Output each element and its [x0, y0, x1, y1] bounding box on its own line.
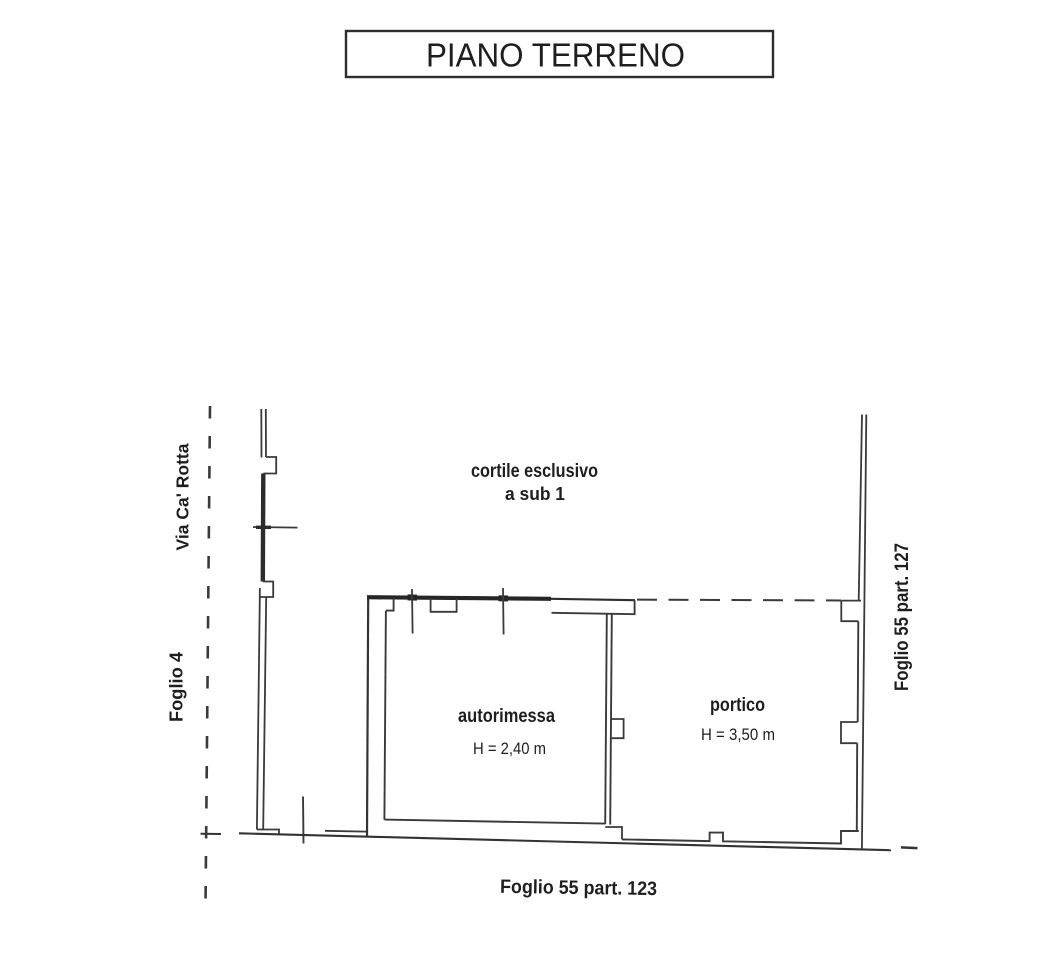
svg-text:Foglio 4: Foglio 4: [166, 651, 187, 722]
svg-text:Foglio 55 part. 127: Foglio 55 part. 127: [892, 543, 913, 691]
svg-text:a sub 1: a sub 1: [505, 484, 565, 504]
svg-text:Via Ca' Rotta: Via Ca' Rotta: [173, 443, 193, 550]
svg-text:cortile esclusivo: cortile esclusivo: [471, 461, 598, 482]
svg-text:autorimessa: autorimessa: [458, 706, 555, 727]
svg-text:portico: portico: [710, 695, 765, 716]
svg-text:Foglio 55 part. 123: Foglio 55 part. 123: [500, 876, 657, 900]
svg-text:H = 2,40 m: H = 2,40 m: [473, 739, 546, 758]
svg-text:H = 3,50 m: H = 3,50 m: [701, 725, 775, 744]
svg-text:PIANO TERRENO: PIANO TERRENO: [426, 37, 685, 74]
